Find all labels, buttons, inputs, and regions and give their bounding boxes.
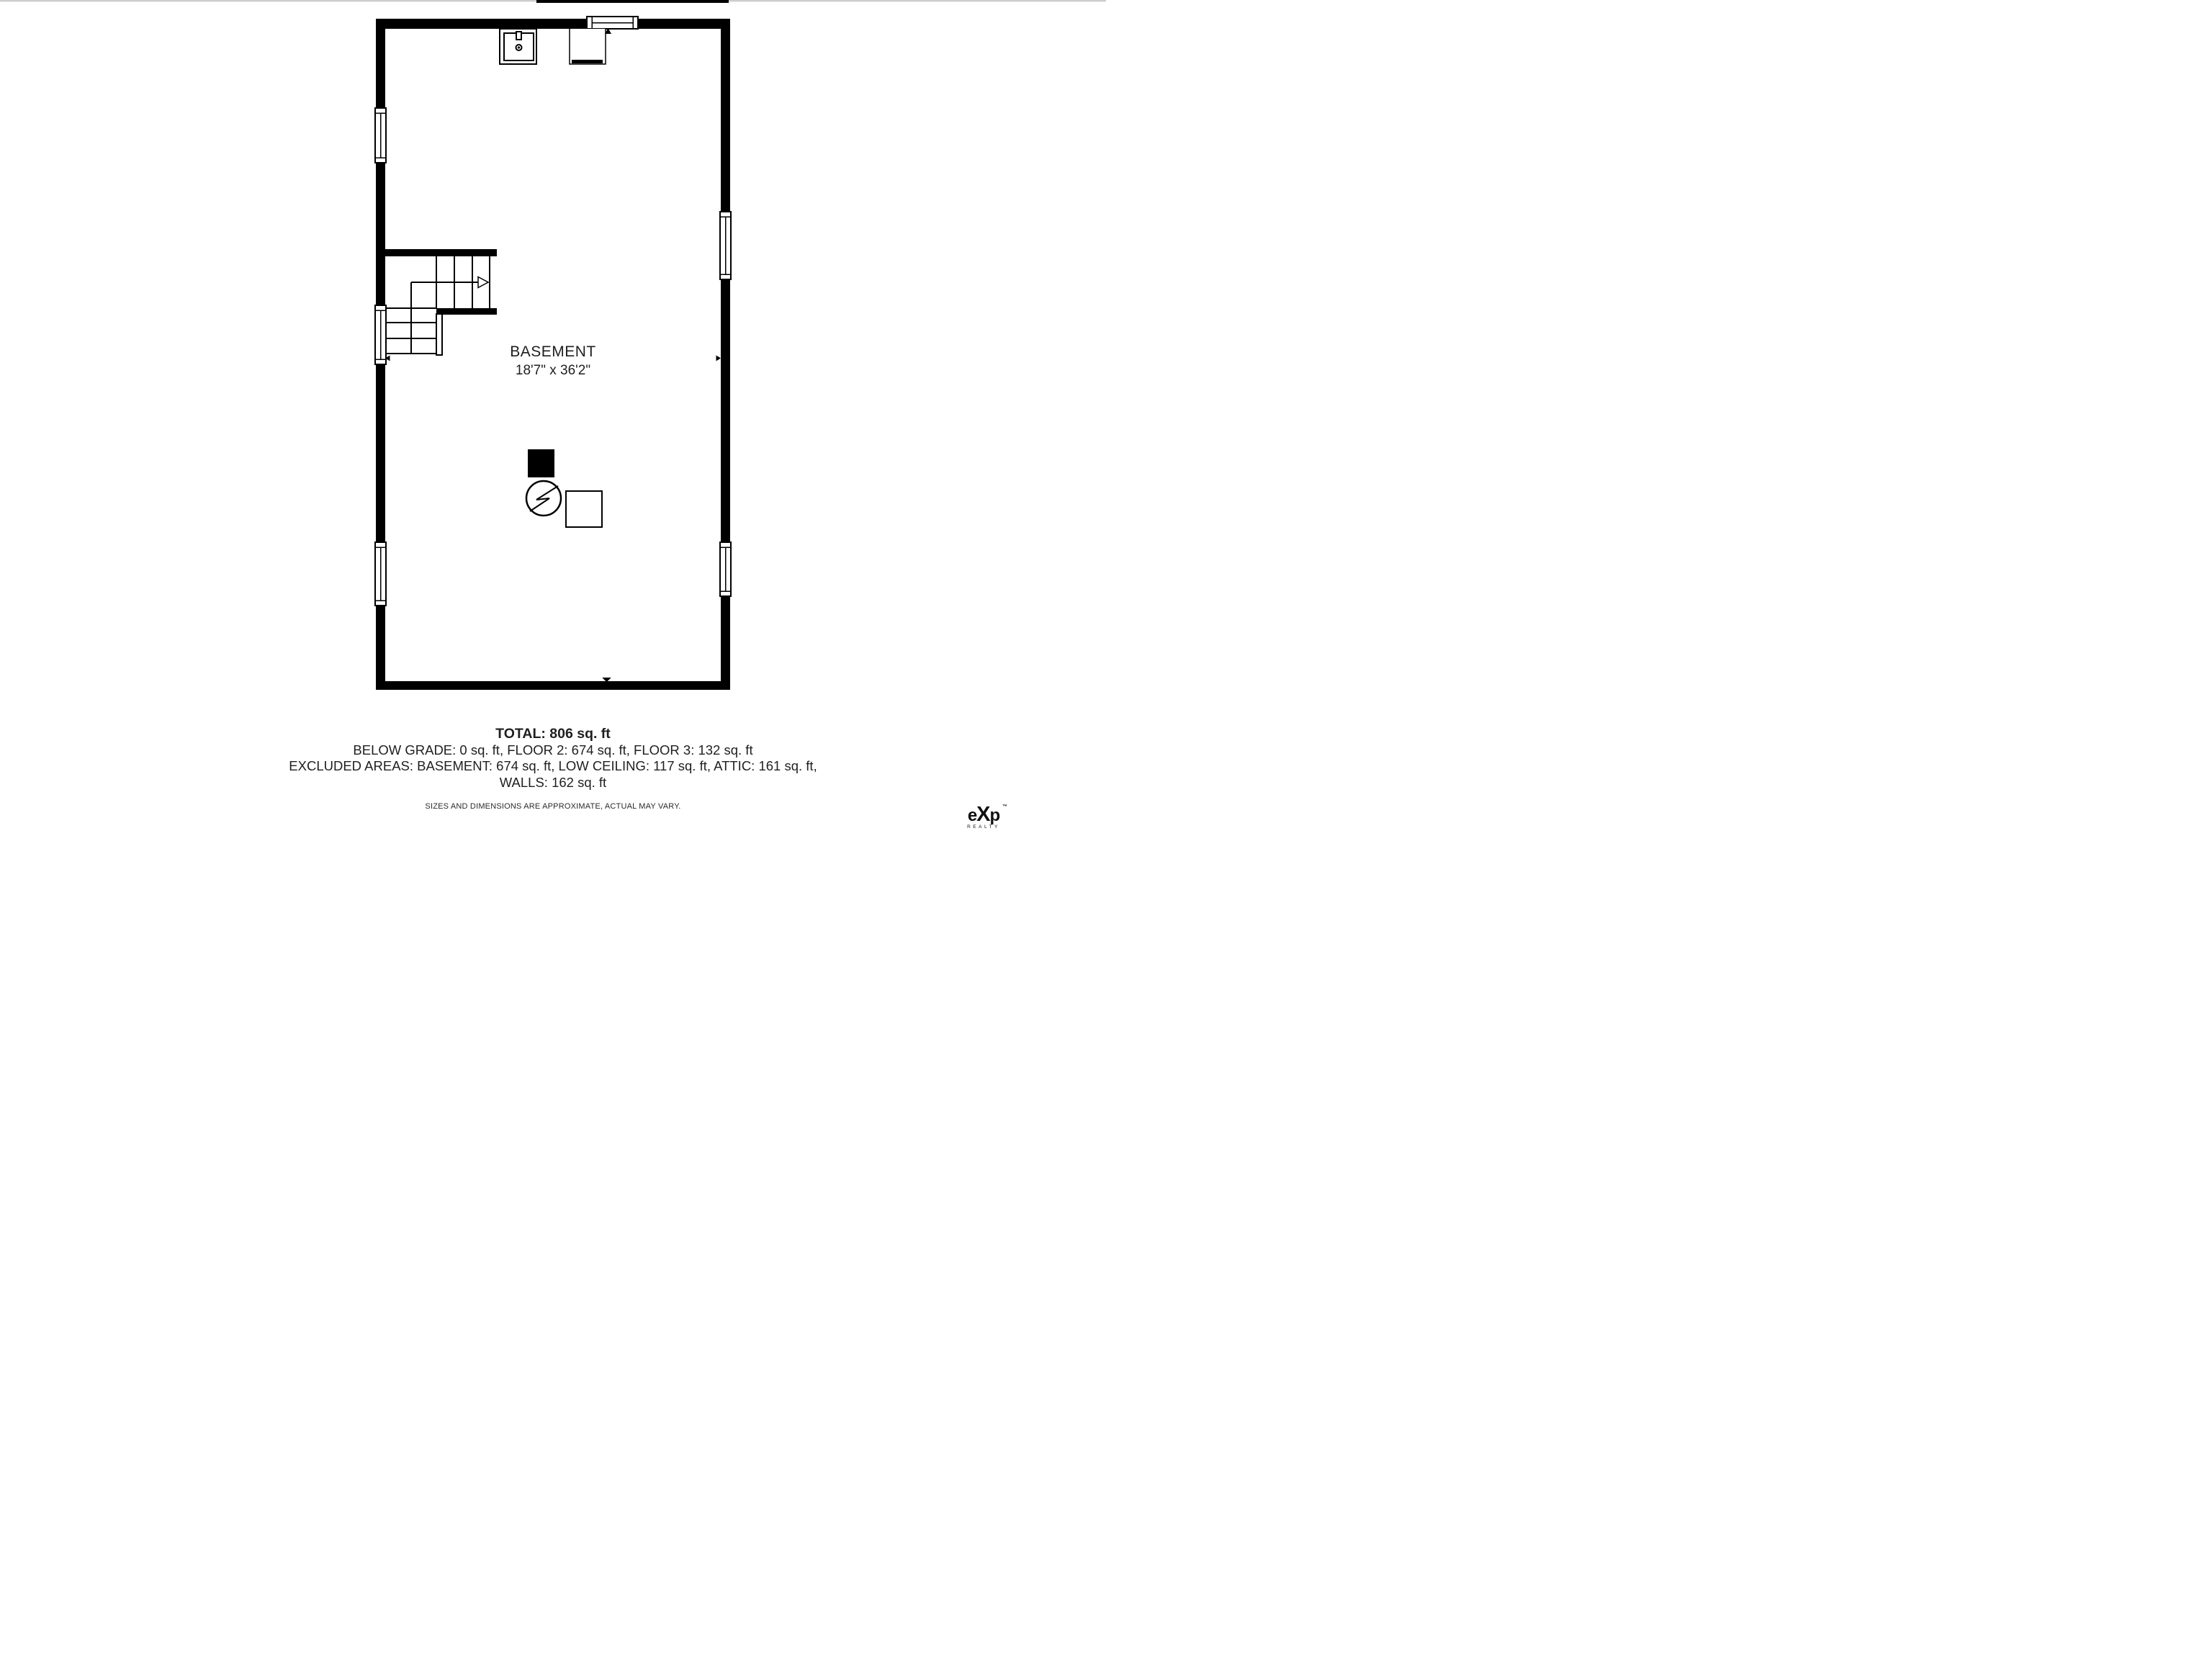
area-summary: TOTAL: 806 sq. ft BELOW GRADE: 0 sq. ft,… [0, 726, 1106, 791]
logo-letter: X [976, 803, 989, 826]
area-breakdown-line: BELOW GRADE: 0 sq. ft, FLOOR 2: 674 sq. … [0, 742, 1106, 759]
sink [500, 29, 536, 64]
sink-faucet [516, 32, 521, 40]
wall-bottom [376, 681, 730, 690]
area-breakdown-line: EXCLUDED AREAS: BASEMENT: 674 sq. ft, LO… [0, 758, 1106, 775]
staircase [385, 256, 490, 355]
total-area-text: TOTAL: 806 sq. ft [0, 726, 1106, 742]
floor-plan-page: BASEMENT 18'7" x 36'2" TOTAL: 806 sq. ft… [0, 0, 1106, 829]
stair-wall-upper [385, 249, 497, 256]
area-breakdown-line: WALLS: 162 sq. ft [0, 775, 1106, 791]
utilities [526, 449, 602, 527]
stair-direction-arrowhead-icon [478, 277, 488, 288]
exp-realty-logo: eXp ™ REALTY [965, 806, 1002, 829]
window-left-upper [375, 108, 386, 163]
room-dimensions-label: 18'7" x 36'2" [385, 363, 721, 379]
stair-wall-lower [436, 308, 497, 315]
sink-drain-dot [518, 46, 520, 48]
door-leaf [572, 60, 603, 63]
logo-letter: e [968, 806, 976, 825]
utility-box [566, 491, 602, 527]
chimney-block [528, 449, 554, 477]
cropped-upper-floor-wall [536, 0, 729, 3]
window-right-lower [720, 542, 731, 596]
room-name-label: BASEMENT [385, 343, 721, 361]
door-swing-area [570, 29, 606, 64]
entry-door-area [570, 28, 611, 64]
window-left-stair [375, 305, 386, 364]
logo-letter: p [990, 806, 1000, 825]
floor-plan-drawing [0, 0, 1106, 829]
disclaimer-text: SIZES AND DIMENSIONS ARE APPROXIMATE, AC… [0, 802, 1106, 811]
window-top-wall [587, 17, 638, 29]
trademark-symbol: ™ [1002, 805, 1007, 809]
exp-logo-wordmark: eXp ™ [965, 806, 1002, 824]
window-left-lower [375, 542, 386, 606]
wall-top [376, 19, 730, 29]
window-right-upper [720, 212, 731, 279]
